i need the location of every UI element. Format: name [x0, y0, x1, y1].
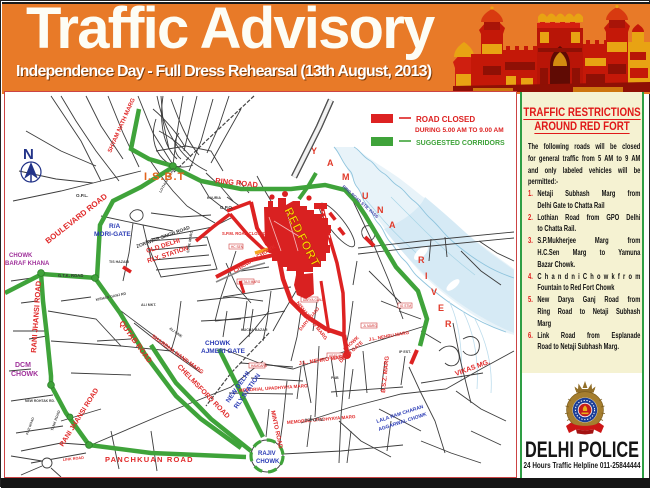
svg-text:R/A: R/A	[109, 223, 121, 230]
svg-text:ALI MKT.: ALI MKT.	[141, 303, 156, 307]
svg-text:KAURIA: KAURIA	[207, 196, 221, 200]
svg-text:PNB: PNB	[331, 376, 339, 380]
svg-text:BARAF KHANA: BARAF KHANA	[5, 261, 50, 267]
svg-text:G.T.K. ROAD: G.T.K. ROAD	[58, 273, 83, 278]
svg-text:TIS HAZARI: TIS HAZARI	[109, 260, 129, 264]
svg-text:HC SEN: HC SEN	[231, 245, 244, 249]
svg-text:A: A	[389, 220, 396, 230]
svg-text:DCM: DCM	[15, 362, 31, 369]
svg-text:CHOWK: CHOWK	[11, 371, 38, 378]
svg-text:CHOWK: CHOWK	[9, 253, 33, 259]
svg-text:AJMERI GATE: AJMERI GATE	[201, 348, 246, 355]
svg-text:O.P.L.: O.P.L.	[76, 193, 88, 198]
svg-text:HAMDARD: HAMDARD	[251, 364, 268, 368]
svg-text:IP EST.: IP EST.	[399, 350, 411, 354]
svg-text:M: M	[342, 172, 350, 182]
svg-text:A: A	[327, 158, 334, 168]
svg-text:G.P.O.: G.P.O.	[220, 205, 233, 210]
svg-text:SUGGESTED CORRIDORS: SUGGESTED CORRIDORS	[416, 140, 505, 147]
svg-text:NEW ROHTAK RD.: NEW ROHTAK RD.	[25, 399, 55, 403]
svg-text:DURING 5.00 AM TO 9.00 AM: DURING 5.00 AM TO 9.00 AM	[415, 127, 504, 134]
svg-text:KOTLA RD: KOTLA RD	[305, 418, 324, 422]
svg-text:I.S.B.T: I.S.B.T	[144, 171, 185, 183]
svg-text:CHOWK: CHOWK	[205, 340, 231, 347]
svg-text:V: V	[431, 287, 437, 297]
svg-text:RAJIV: RAJIV	[258, 451, 276, 457]
svg-text:E: E	[438, 303, 444, 313]
svg-text:R: R	[445, 319, 452, 329]
svg-text:N: N	[23, 146, 34, 163]
svg-text:KUCHA BAZAR: KUCHA BAZAR	[241, 328, 268, 332]
svg-text:JL MARG: JL MARG	[363, 324, 377, 328]
svg-text:ROAD CLOSED: ROAD CLOSED	[416, 115, 475, 124]
svg-text:CHOWK: CHOWK	[256, 459, 280, 465]
svg-text:S.P.M. ROAD CLOSED: S.P.M. ROAD CLOSED	[222, 231, 266, 236]
svg-text:I: I	[425, 271, 428, 281]
svg-text:IG STM: IG STM	[400, 304, 411, 308]
svg-text:R: R	[418, 255, 425, 265]
svg-text:PANCHKUAN ROAD: PANCHKUAN ROAD	[105, 455, 194, 464]
svg-text:MORI-GATE: MORI-GATE	[94, 231, 131, 238]
